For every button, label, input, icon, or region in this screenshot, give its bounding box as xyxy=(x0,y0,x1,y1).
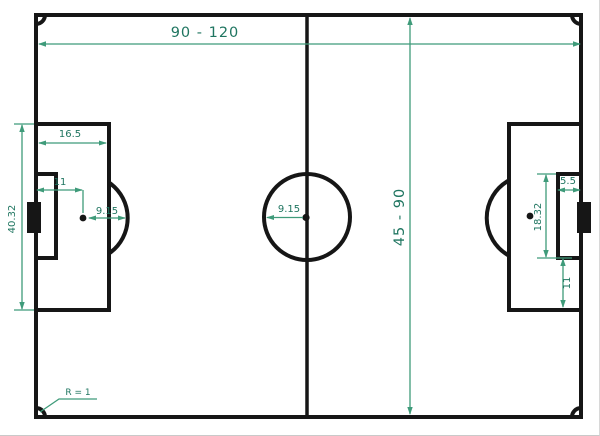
goal-area-offset-label: 11 xyxy=(562,277,573,290)
dimension-centre-circle-radius: 9.15 xyxy=(266,204,303,220)
penalty-spot-distance-label: 11 xyxy=(54,177,67,188)
pitch-width-label: 45 - 90 xyxy=(392,188,408,246)
dimension-corner-radius: R = 1 xyxy=(40,388,97,412)
dimension-penalty-arc-radius: 9.15 xyxy=(88,206,126,221)
pitch-length-label: 90 - 120 xyxy=(171,25,240,41)
corner-radius-label: R = 1 xyxy=(65,388,90,398)
centre-spot xyxy=(302,214,309,221)
dimension-penalty-area-depth: 16.5 xyxy=(38,129,107,146)
pitch-diagram: 90 - 120 45 - 90 16.5 40.32 11 9.15 xyxy=(0,0,600,436)
dimension-pitch-length: 90 - 120 xyxy=(38,25,581,47)
right-goal xyxy=(577,202,591,233)
dimension-penalty-spot-distance: 11 xyxy=(36,177,83,213)
left-penalty-spot xyxy=(80,215,87,222)
goal-area-width-label: 18.32 xyxy=(533,203,544,232)
right-penalty-arc xyxy=(487,182,507,255)
penalty-arc-radius-label: 9.15 xyxy=(96,206,118,217)
centre-circle-radius-label: 9.15 xyxy=(278,204,300,215)
left-penalty-area xyxy=(36,124,109,310)
dimension-pitch-width: 45 - 90 xyxy=(392,17,413,415)
left-goal xyxy=(27,202,41,233)
dimension-goal-area-depth: 5.5 xyxy=(557,176,581,193)
goal-area-depth-label: 5.5 xyxy=(560,176,576,187)
penalty-area-depth-label: 16.5 xyxy=(59,129,81,140)
penalty-area-width-label: 40.32 xyxy=(7,205,18,234)
dimension-goal-area-offset: 11 xyxy=(560,258,573,308)
